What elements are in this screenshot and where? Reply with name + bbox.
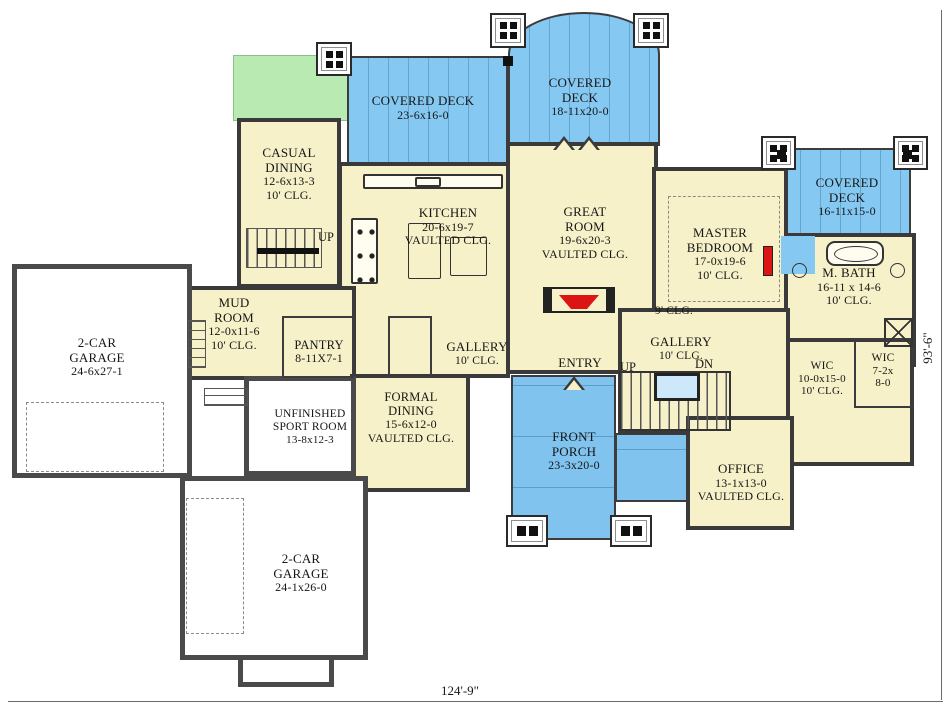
room-name: COVERED DECK	[544, 76, 616, 105]
room-name: 2-CAR GARAGE	[266, 552, 336, 581]
room-name: PANTRY	[284, 338, 354, 352]
stairs-center	[619, 371, 731, 431]
dimension-line-right	[941, 10, 942, 700]
room-name: MASTER BEDROOM	[678, 226, 762, 255]
label-pantry: PANTRY 8-11X7-1	[284, 338, 354, 366]
shower	[884, 318, 913, 347]
room-size: 15-6x12-0	[352, 418, 470, 432]
corner-post-2	[777, 150, 786, 159]
room-size: 18-11x20-0	[508, 105, 652, 119]
dimension-line-bottom	[8, 701, 943, 702]
room-size: 20-6x19-7	[363, 221, 533, 235]
porch-post-right	[610, 515, 652, 547]
label-covered-deck-right: COVERED DECK 16-11x15-0	[782, 176, 912, 219]
room-name: M. BATH	[786, 266, 912, 281]
deck-post-2	[490, 13, 526, 48]
room-size: 23-3x20-0	[514, 459, 634, 473]
room-name: 2-CAR GARAGE	[62, 336, 132, 365]
label-covered-deck-left: COVERED DECK 23-6x16-0	[347, 94, 499, 122]
kitchen-sink	[415, 177, 441, 187]
room-ceiling: 10' CLG.	[660, 269, 780, 283]
room-ceiling: 10' CLG.	[237, 189, 341, 203]
room-ceiling: VAULTED CLG.	[352, 432, 470, 446]
kitchen-counter	[363, 174, 503, 189]
bathtub	[826, 241, 884, 266]
room-name: OFFICE	[688, 462, 794, 477]
tag-up-center: UP	[620, 360, 636, 375]
room-size: 23-6x16-0	[347, 109, 499, 123]
room-ceiling: VAULTED CLG.	[363, 234, 533, 248]
label-mud-room: MUD ROOM 12-0x11-6 10' CLG.	[188, 296, 280, 352]
room-size: 12-6x13-3	[237, 175, 341, 189]
room-size: 12-0x11-6	[188, 325, 280, 339]
room-name: FORMAL DINING	[380, 390, 442, 418]
room-ceiling: 10' CLG.	[786, 294, 912, 308]
stair-landing-bar	[257, 248, 319, 254]
fireplace-firebox	[559, 295, 599, 309]
label-master-bath: M. BATH 16-11 x 14-6 10' CLG.	[786, 266, 912, 308]
label-entry: ENTRY	[530, 356, 630, 371]
ceiling-note: 9' CLG.	[645, 305, 703, 318]
room-size: 24-1x26-0	[221, 581, 381, 595]
dimension-height: 93'-6"	[920, 318, 936, 378]
deck-post-1	[316, 42, 352, 76]
room-ceiling: VAULTED CLG.	[510, 248, 660, 262]
garage-upper-door-dash	[26, 402, 164, 472]
room-name: CASUAL DINING	[254, 146, 324, 175]
room-size: 19-6x20-3	[510, 234, 660, 248]
room-size: 10-0x15-0	[790, 373, 854, 385]
corner-post-3	[903, 150, 912, 159]
room-name: ENTRY	[530, 356, 630, 371]
fireplace	[543, 287, 615, 313]
room-ceiling: 10' CLG.	[623, 350, 739, 363]
room-name: KITCHEN	[363, 206, 533, 221]
tag-up-left: UP	[318, 230, 334, 245]
room-name: MUD ROOM	[210, 296, 258, 325]
corner-post-1	[503, 56, 513, 66]
room-size: 24-6x27-1	[17, 365, 177, 379]
room-size: 7-2x 8-0	[868, 365, 898, 390]
room-name: UNFINISHED SPORT ROOM	[269, 408, 351, 434]
great-room-door-swing-left	[553, 136, 575, 150]
label-great-room: GREAT ROOM 19-6x20-3 VAULTED CLG.	[510, 205, 660, 261]
label-master-bedroom: MASTER BEDROOM 17-0x19-6 10' CLG.	[660, 226, 780, 282]
bathtub-basin	[834, 246, 878, 262]
room-name: COVERED DECK	[347, 94, 499, 109]
label-casual-dining: CASUAL DINING 12-6x13-3 10' CLG.	[237, 146, 341, 202]
room-name: WIC	[790, 360, 854, 373]
label-kitchen: KITCHEN 20-6x19-7 VAULTED CLG.	[363, 206, 533, 248]
great-room-door-swing-right	[578, 136, 600, 150]
label-formal-dining: FORMAL DINING 15-6x12-0 VAULTED CLG.	[352, 390, 470, 445]
floor-plan-canvas: COVERED DECK 23-6x16-0 COVERED DECK 18-1…	[0, 0, 950, 710]
porch-post-left	[506, 515, 548, 547]
tag-dn-center: DN	[695, 357, 713, 372]
room-name: GREAT ROOM	[557, 205, 613, 234]
label-ceiling-9: 9' CLG.	[645, 305, 703, 318]
room-name: WIC	[858, 352, 908, 365]
label-covered-deck-top: COVERED DECK 18-11x20-0	[508, 76, 652, 119]
room-size: 13-8x12-3	[252, 434, 368, 446]
room-ceiling: 10' CLG.	[407, 355, 547, 368]
room-size: 16-11x15-0	[782, 205, 912, 219]
room-ceiling: VAULTED CLG.	[688, 490, 794, 504]
room-name: COVERED DECK	[811, 176, 883, 205]
garage-lower-recess	[238, 655, 334, 687]
label-garage-upper: 2-CAR GARAGE 24-6x27-1	[17, 336, 177, 379]
label-wic-large: WIC 10-0x15-0 10' CLG.	[790, 360, 854, 398]
label-gallery-left: GALLERY 10' CLG.	[407, 340, 547, 368]
deck-post-3	[633, 13, 669, 48]
room-name: GALLERY	[407, 340, 547, 355]
label-front-porch: FRONT PORCH 23-3x20-0	[514, 430, 634, 473]
room-size: 13-1x13-0	[688, 477, 794, 491]
entry-door-swing	[563, 376, 585, 390]
label-gallery-right: GALLERY 10' CLG.	[623, 335, 739, 363]
room-size: 16-11 x 14-6	[786, 281, 912, 295]
stairs-left	[246, 228, 322, 268]
room-ceiling: 10' CLG.	[790, 385, 854, 397]
room-name: FRONT PORCH	[547, 430, 601, 459]
exterior-steps	[204, 388, 248, 406]
room-size: 17-0x19-6	[660, 255, 780, 269]
label-office: OFFICE 13-1x13-0 VAULTED CLG.	[688, 462, 794, 504]
room-size: 8-11X7-1	[284, 352, 354, 366]
label-garage-lower: 2-CAR GARAGE 24-1x26-0	[221, 552, 381, 595]
label-wic-small: WIC 7-2x 8-0	[858, 352, 908, 390]
label-sport-room: UNFINISHED SPORT ROOM 13-8x12-3	[252, 408, 368, 446]
room-name: GALLERY	[623, 335, 739, 350]
dimension-width: 124'-9"	[400, 683, 520, 699]
room-ceiling: 10' CLG.	[188, 339, 280, 353]
stairwell-opening	[654, 373, 700, 401]
